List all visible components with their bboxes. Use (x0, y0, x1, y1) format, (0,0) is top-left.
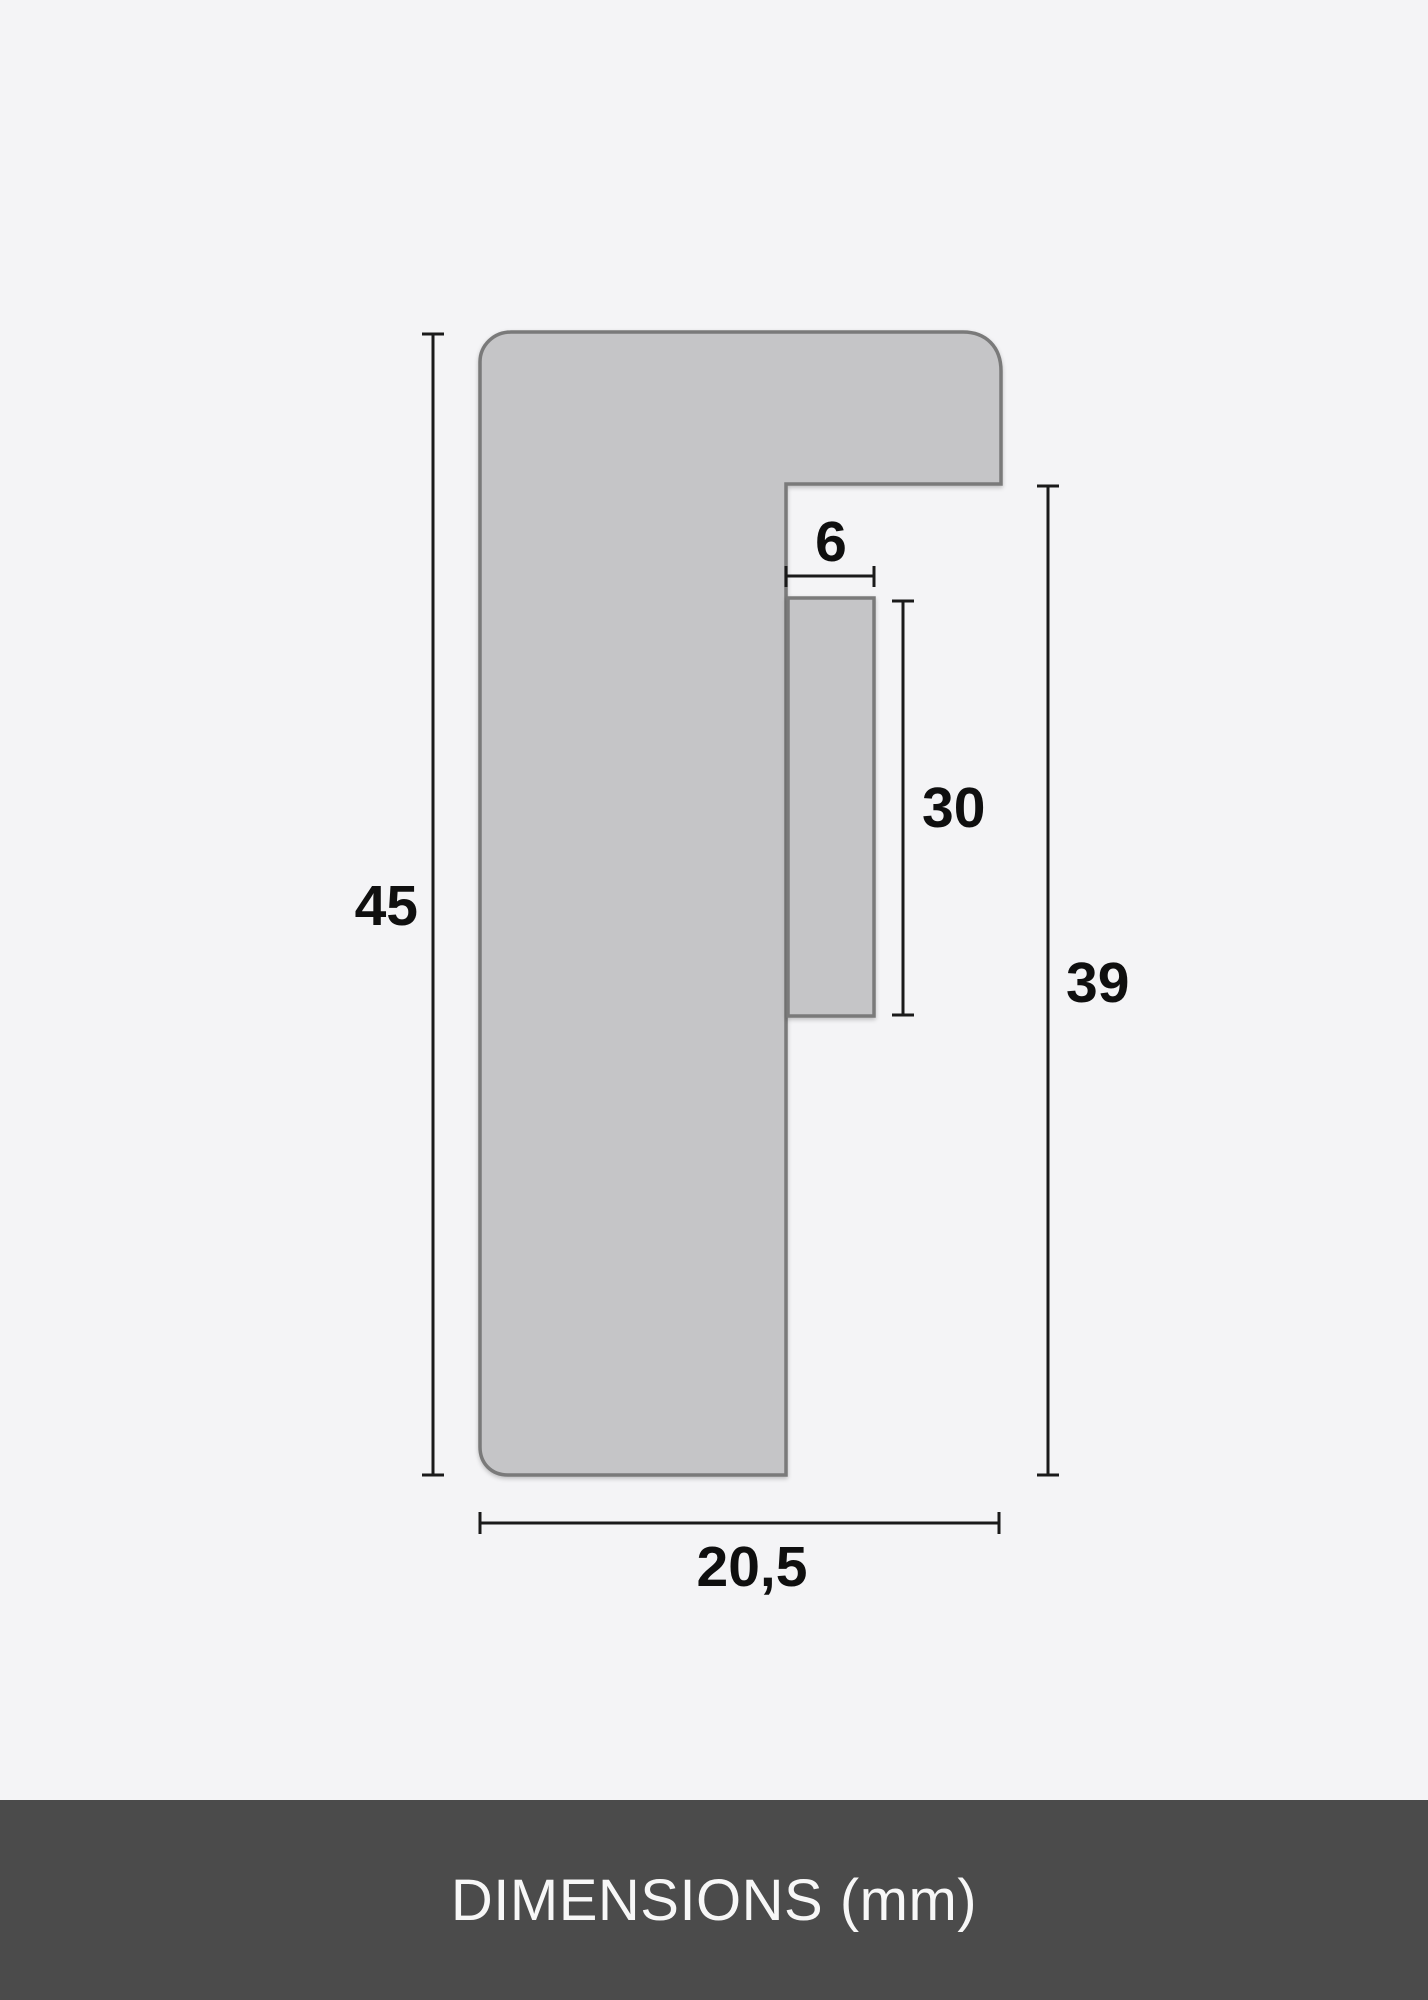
frame-profile-dimension-diagram: 45 6 30 39 20,5 (0, 0, 1428, 2000)
dimension-lip-width: 6 (786, 510, 874, 587)
footer-caption-label: DIMENSIONS (mm) (451, 1867, 977, 1934)
dimension-overall-width-label: 20,5 (697, 1535, 808, 1599)
dimension-inner-height-label: 39 (1066, 951, 1129, 1015)
dimension-overall-height-label: 45 (355, 874, 418, 938)
profile-diagram-canvas: 45 6 30 39 20,5 (0, 0, 1428, 1800)
dimension-lip-depth: 30 (892, 601, 985, 1015)
dimension-inner-height: 39 (1037, 486, 1129, 1475)
profile-body-shape (480, 332, 1001, 1475)
dimension-overall-width: 20,5 (480, 1512, 999, 1599)
footer-caption-bar: DIMENSIONS (mm) (0, 1800, 1428, 2000)
dimension-lip-depth-label: 30 (922, 776, 985, 840)
dimension-lip-width-label: 6 (815, 510, 847, 574)
profile-cross-section (480, 332, 1001, 1475)
profile-lip-shape (788, 598, 874, 1016)
dimension-overall-height: 45 (355, 334, 444, 1475)
